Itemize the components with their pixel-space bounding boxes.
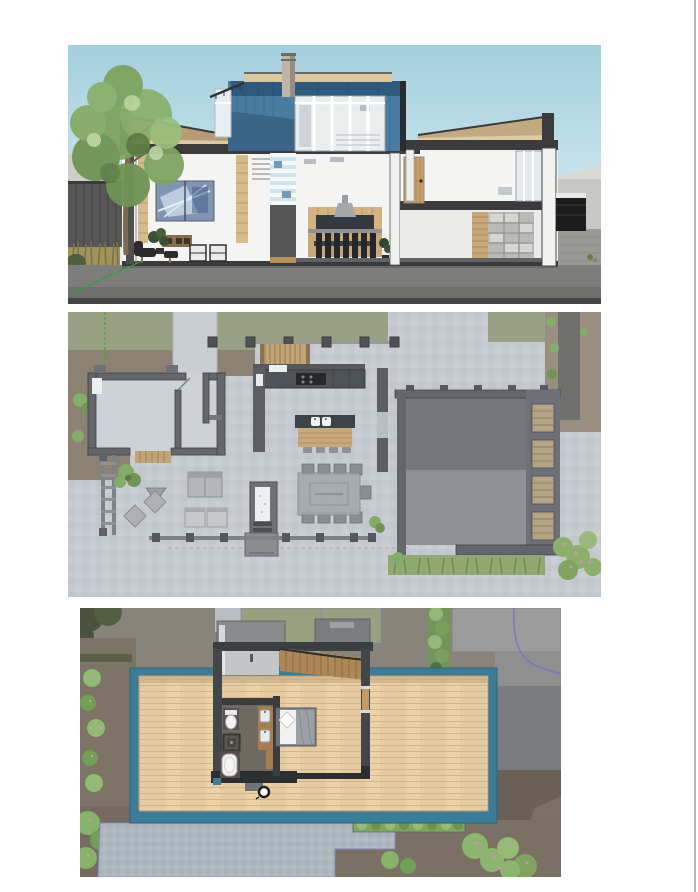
wall-artwork xyxy=(156,181,214,221)
lower-roof-volume xyxy=(395,385,560,555)
garage xyxy=(400,210,542,262)
bed xyxy=(276,708,316,746)
section-elevation-figure xyxy=(68,45,601,304)
fireplace xyxy=(245,482,278,556)
toilet xyxy=(223,708,239,730)
dining-chairs xyxy=(316,233,376,261)
storage-shelving xyxy=(488,212,534,258)
bathroom xyxy=(220,705,273,778)
left-room xyxy=(88,365,225,455)
balcony-box xyxy=(556,193,586,231)
hedge-column xyxy=(428,608,450,674)
shower xyxy=(223,734,240,751)
bathtub xyxy=(220,752,240,778)
page-edge-line xyxy=(694,0,696,892)
chimney xyxy=(281,53,296,97)
ground xyxy=(68,265,601,304)
popup-windows xyxy=(295,96,385,151)
floor-plan-figure xyxy=(68,312,601,597)
vanity-sinks xyxy=(258,706,271,750)
dining-set xyxy=(298,464,371,523)
roof-plan-figure xyxy=(80,608,561,877)
